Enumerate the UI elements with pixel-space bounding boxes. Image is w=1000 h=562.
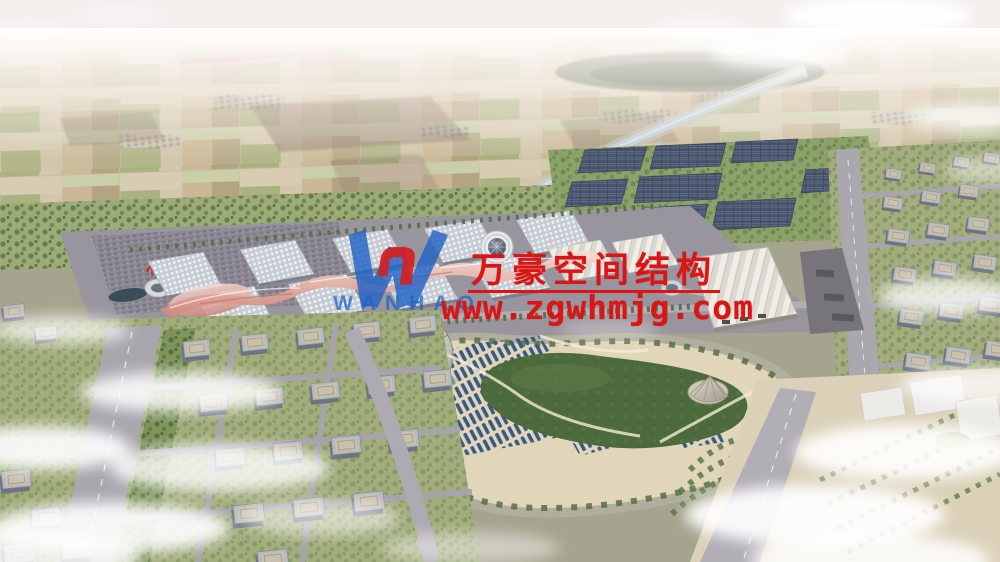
aerial-render-image: WANHAO 万豪空间结构 www.zgwhmjg.com (0, 0, 1000, 562)
watermark-url: www.zgwhmjg.com (441, 288, 754, 327)
watermark-company-name: 万豪空间结构 (468, 253, 720, 293)
